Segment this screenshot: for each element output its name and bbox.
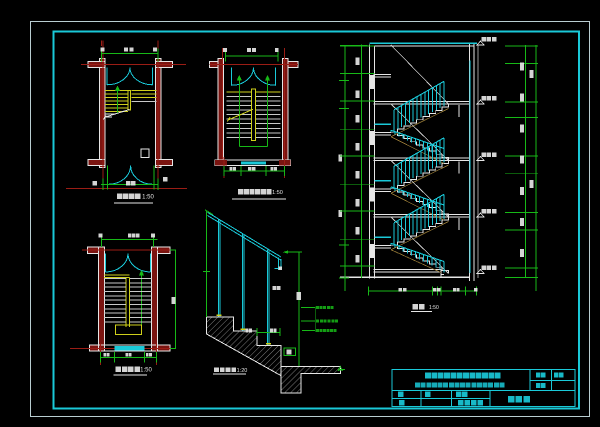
- svg-text:1:50: 1:50: [142, 195, 154, 201]
- svg-text:1:50: 1:50: [429, 305, 439, 311]
- svg-text:1:50: 1:50: [140, 368, 152, 374]
- svg-text:1:20: 1:20: [237, 368, 248, 374]
- svg-text:1:50: 1:50: [272, 190, 283, 196]
